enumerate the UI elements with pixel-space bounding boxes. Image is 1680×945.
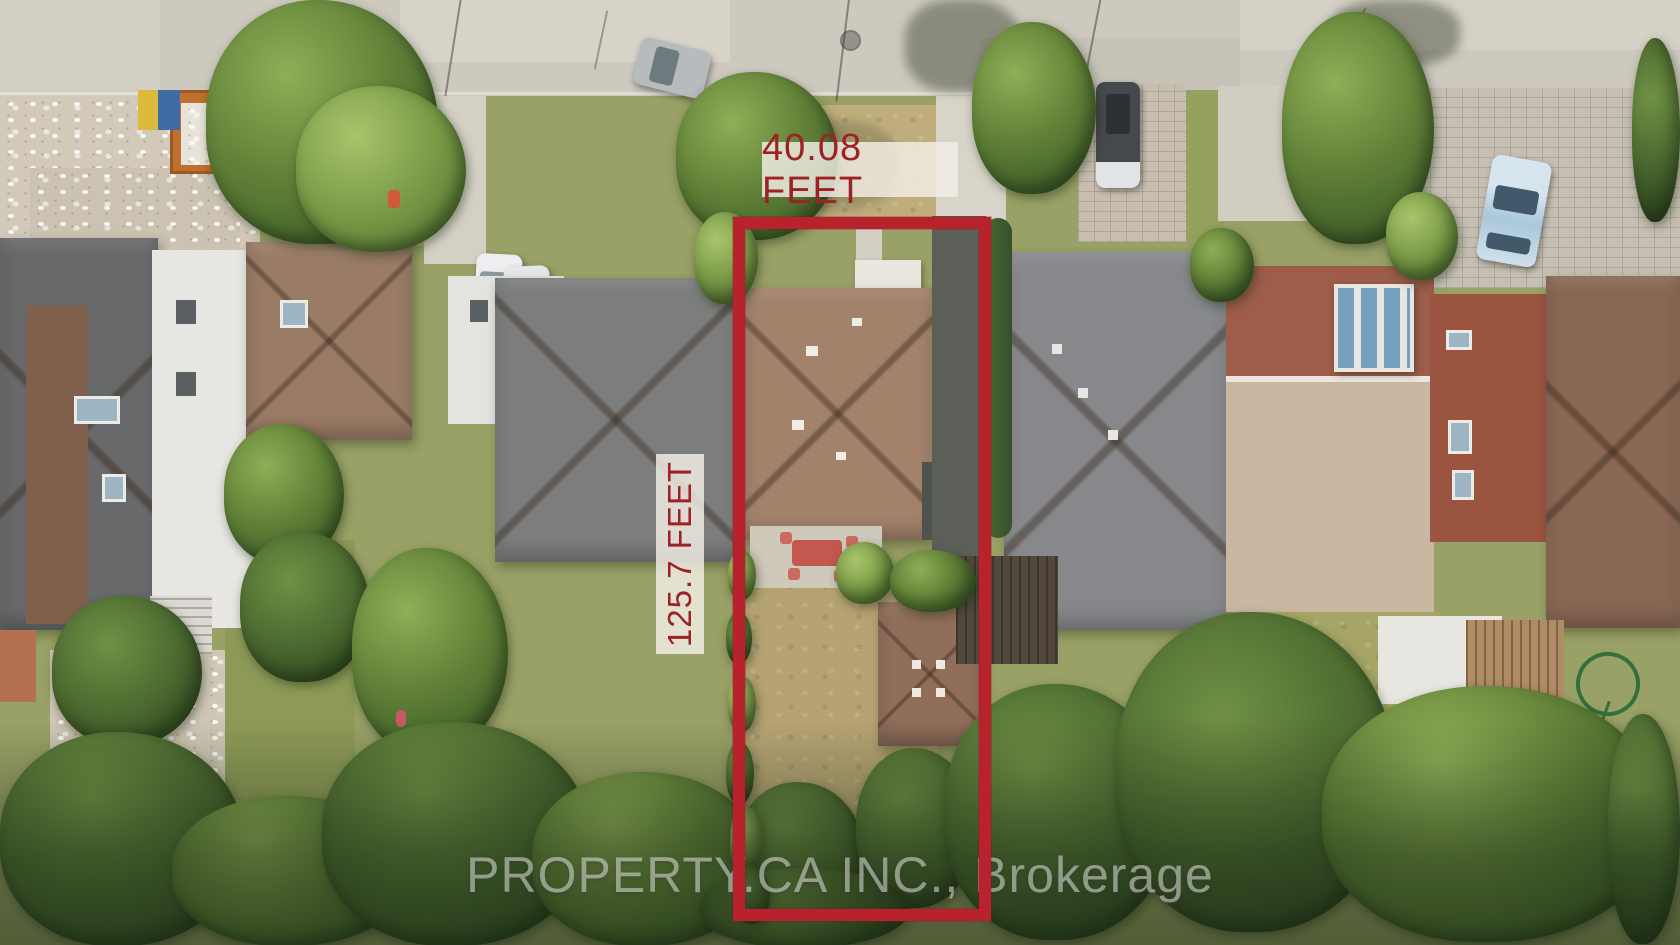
frontage-dimension-text: 40.08 FEET — [762, 127, 958, 213]
car-rear-window — [1485, 232, 1531, 255]
window — [1448, 420, 1472, 454]
brown-house-roof — [246, 242, 412, 440]
bush — [1386, 192, 1458, 280]
atrium-skylight — [1334, 284, 1414, 372]
van-windshield — [1096, 162, 1140, 188]
left-modern-house-facade — [152, 250, 256, 628]
tree — [1632, 38, 1680, 222]
roof-vent — [1108, 430, 1118, 440]
roof-vent — [1078, 388, 1088, 398]
road-patch — [0, 0, 160, 96]
van-sunroof — [1106, 94, 1130, 134]
skylight — [74, 396, 120, 424]
window — [176, 372, 196, 396]
recycle-bin-lid — [138, 90, 158, 130]
car-windshield — [1492, 185, 1539, 216]
roof-window — [280, 300, 308, 328]
person — [396, 710, 406, 727]
tree-canopy — [1608, 714, 1680, 944]
far-right-brown-roof — [1546, 276, 1680, 628]
depth-dimension-label: 125.7 FEET — [656, 454, 704, 654]
recycle-bin — [138, 90, 180, 130]
car-windshield — [648, 46, 680, 87]
roof-vent — [1052, 344, 1062, 354]
tree — [240, 532, 370, 682]
left-modern-house-roof-channel — [26, 306, 88, 624]
red-object — [388, 190, 400, 208]
frontage-dimension-label: 40.08 FEET — [762, 142, 958, 197]
brick-house-flat-roof — [1226, 382, 1434, 612]
parked-minivan-dark — [1096, 82, 1140, 188]
small-orange-roof — [0, 630, 36, 702]
tree — [52, 596, 202, 746]
aerial-photo: 40.08 FEET 125.7 FEET PROPERTY.CA INC., … — [0, 0, 1680, 945]
tree — [296, 86, 466, 252]
window — [1452, 470, 1474, 500]
window — [1446, 330, 1472, 350]
window — [470, 300, 488, 322]
tree — [972, 22, 1096, 194]
depth-dimension-text: 125.7 FEET — [661, 461, 699, 647]
tree — [1190, 228, 1254, 302]
window — [176, 300, 196, 324]
skylight — [102, 474, 126, 502]
lot-outline — [733, 217, 991, 921]
